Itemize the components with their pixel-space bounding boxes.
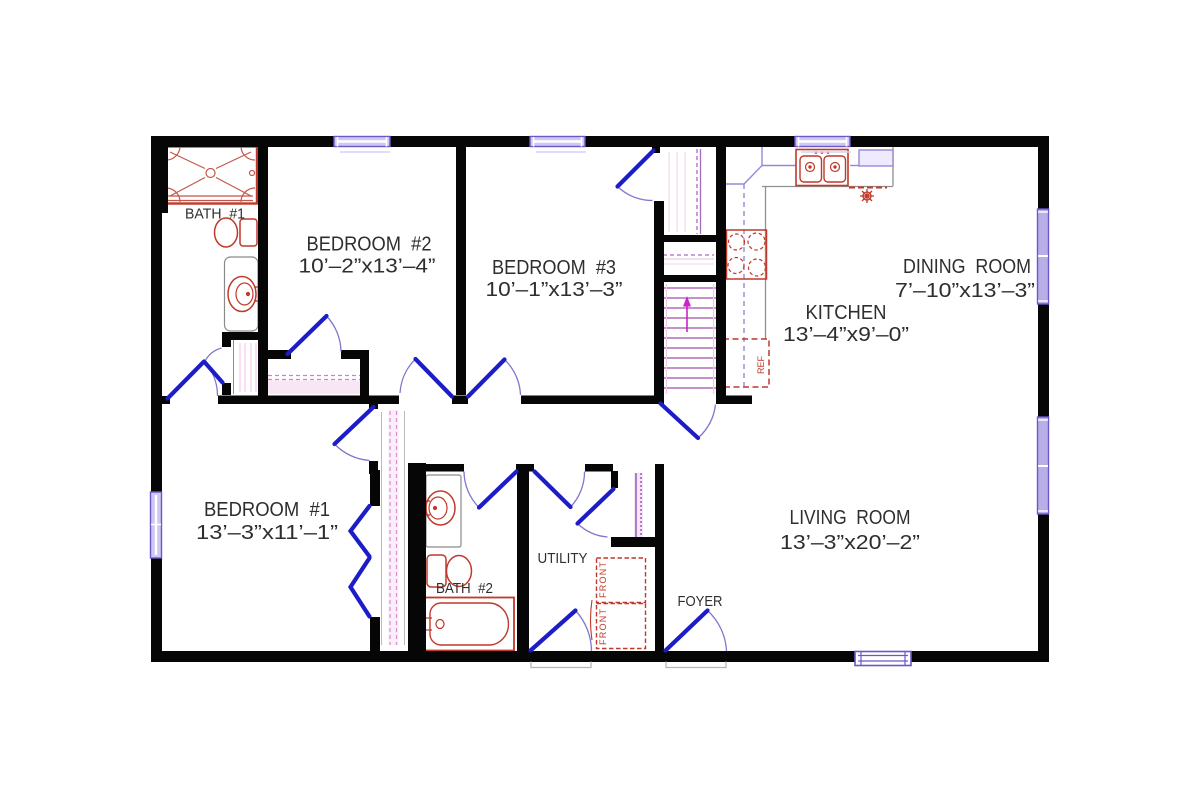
- svg-text:FRONT: FRONT: [598, 609, 608, 646]
- svg-text:FRONT: FRONT: [598, 562, 608, 599]
- svg-text:7’–10”x13’–3”: 7’–10”x13’–3”: [895, 280, 1035, 302]
- svg-text:BATH #1: BATH #1: [185, 206, 245, 223]
- svg-text:10’–2”x13’–4”: 10’–2”x13’–4”: [299, 256, 436, 278]
- svg-text:UTILITY: UTILITY: [538, 550, 588, 567]
- svg-text:KITCHEN: KITCHEN: [806, 302, 887, 324]
- svg-text:FOYER: FOYER: [678, 593, 723, 610]
- svg-text:BEDROOM #2: BEDROOM #2: [307, 234, 432, 256]
- svg-text:BEDROOM #3: BEDROOM #3: [492, 257, 616, 279]
- svg-text:BEDROOM #1: BEDROOM #1: [204, 499, 330, 521]
- svg-text:LIVING ROOM: LIVING ROOM: [790, 507, 911, 529]
- svg-text:BATH #2: BATH #2: [436, 580, 493, 597]
- svg-text:13’–3”x11’–1”: 13’–3”x11’–1”: [196, 522, 338, 544]
- svg-text:13’–3”x20’–2”: 13’–3”x20’–2”: [780, 532, 920, 554]
- svg-text:REF: REF: [756, 355, 766, 374]
- svg-text:DINING ROOM: DINING ROOM: [903, 256, 1031, 278]
- svg-text:10’–1”x13’–3”: 10’–1”x13’–3”: [486, 279, 623, 301]
- svg-text:13’–4”x9’–0”: 13’–4”x9’–0”: [783, 324, 909, 346]
